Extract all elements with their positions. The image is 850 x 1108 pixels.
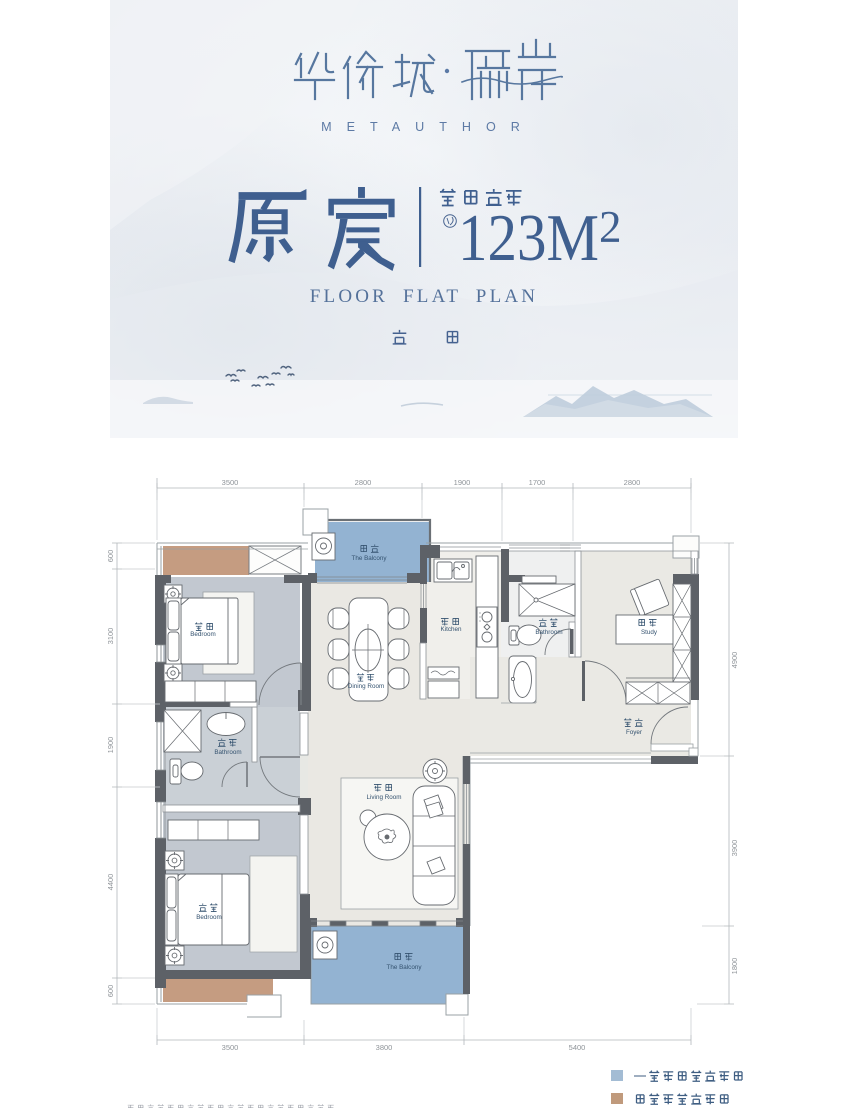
svg-text:1700: 1700 bbox=[529, 478, 546, 487]
svg-text:Bathroom: Bathroom bbox=[535, 629, 562, 636]
svg-text:Dining Room: Dining Room bbox=[348, 683, 384, 690]
svg-text:2800: 2800 bbox=[355, 478, 372, 487]
svg-text:Study: Study bbox=[641, 629, 658, 636]
svg-text:5400: 5400 bbox=[569, 1043, 586, 1052]
svg-text:1800: 1800 bbox=[730, 958, 739, 975]
svg-text:Bathroom: Bathroom bbox=[214, 749, 241, 756]
svg-text:3100: 3100 bbox=[106, 628, 115, 645]
svg-text:Bedroom: Bedroom bbox=[196, 914, 222, 921]
svg-text:Foyer: Foyer bbox=[626, 729, 642, 736]
svg-text:METAUTHOR: METAUTHOR bbox=[321, 120, 535, 134]
svg-text:4400: 4400 bbox=[106, 874, 115, 891]
svg-text:1900: 1900 bbox=[106, 737, 115, 754]
svg-text:600: 600 bbox=[106, 550, 115, 563]
svg-text:3900: 3900 bbox=[730, 840, 739, 857]
svg-text:3800: 3800 bbox=[376, 1043, 393, 1052]
svg-text:3500: 3500 bbox=[222, 478, 239, 487]
svg-text:Kitchen: Kitchen bbox=[440, 626, 462, 633]
svg-text:Bedroom: Bedroom bbox=[190, 631, 216, 638]
svg-text:4900: 4900 bbox=[730, 652, 739, 669]
svg-text:FLOOR FLAT PLAN: FLOOR FLAT PLAN bbox=[310, 286, 538, 307]
svg-text:1900: 1900 bbox=[454, 478, 471, 487]
svg-text:3500: 3500 bbox=[222, 1043, 239, 1052]
svg-text:123M: 123M bbox=[458, 201, 599, 275]
svg-text:600: 600 bbox=[106, 985, 115, 998]
svg-text:The Balcony: The Balcony bbox=[386, 964, 422, 971]
svg-text:2: 2 bbox=[599, 202, 622, 252]
svg-text:2800: 2800 bbox=[624, 478, 641, 487]
svg-text:The Balcony: The Balcony bbox=[351, 555, 387, 562]
svg-text:Living Room: Living Room bbox=[367, 794, 402, 801]
